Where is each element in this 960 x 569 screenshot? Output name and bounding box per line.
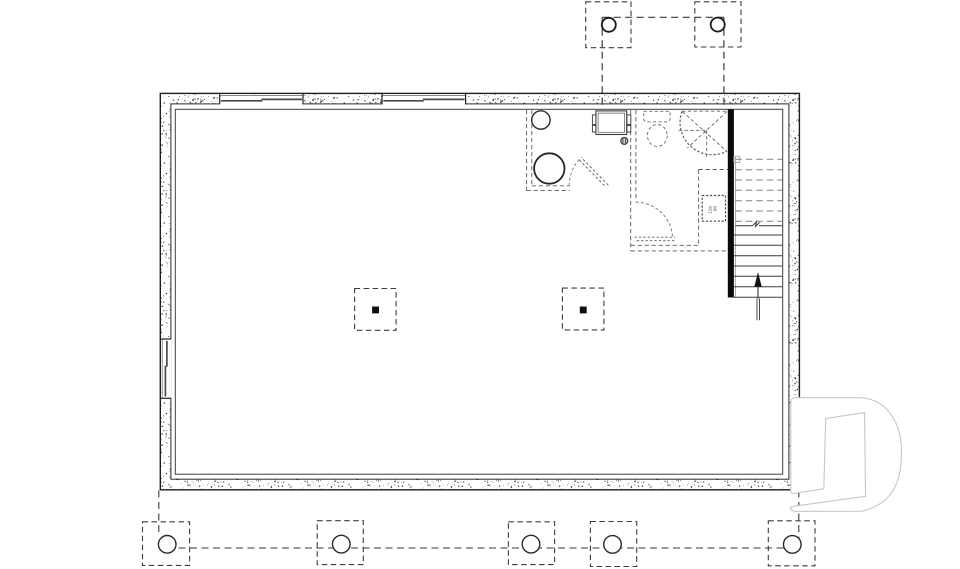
svg-text:6B: 6B <box>713 206 718 211</box>
